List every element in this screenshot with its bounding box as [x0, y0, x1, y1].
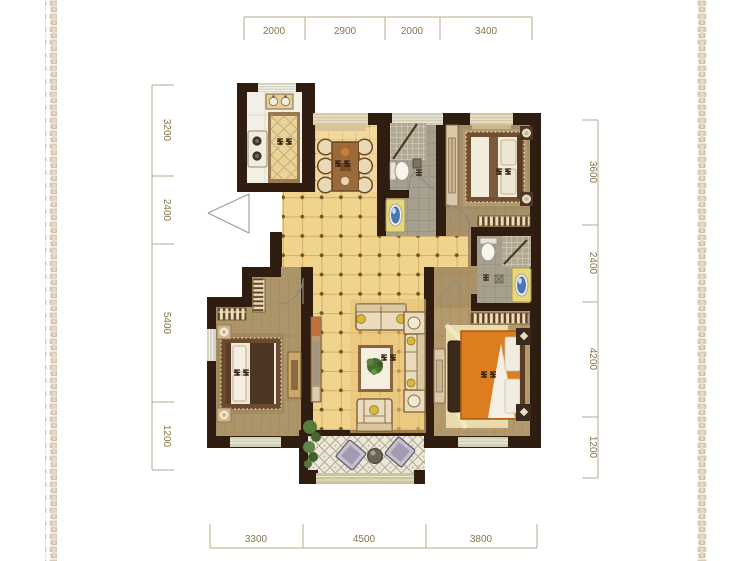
svg-text:2400: 2400 [587, 252, 598, 275]
svg-text:1200: 1200 [161, 425, 172, 448]
svg-text:3400: 3400 [475, 26, 498, 37]
svg-text:2000: 2000 [401, 26, 424, 37]
svg-text:2900: 2900 [334, 26, 357, 37]
svg-text:3200: 3200 [161, 119, 172, 142]
svg-text:2000: 2000 [263, 26, 286, 37]
svg-text:4500: 4500 [353, 534, 376, 545]
svg-text:3600: 3600 [587, 161, 598, 184]
svg-text:3800: 3800 [470, 534, 493, 545]
svg-text:4200: 4200 [587, 348, 598, 371]
svg-text:2400: 2400 [161, 199, 172, 222]
svg-text:3300: 3300 [245, 534, 268, 545]
svg-text:5400: 5400 [161, 312, 172, 335]
svg-text:1200: 1200 [587, 436, 598, 459]
